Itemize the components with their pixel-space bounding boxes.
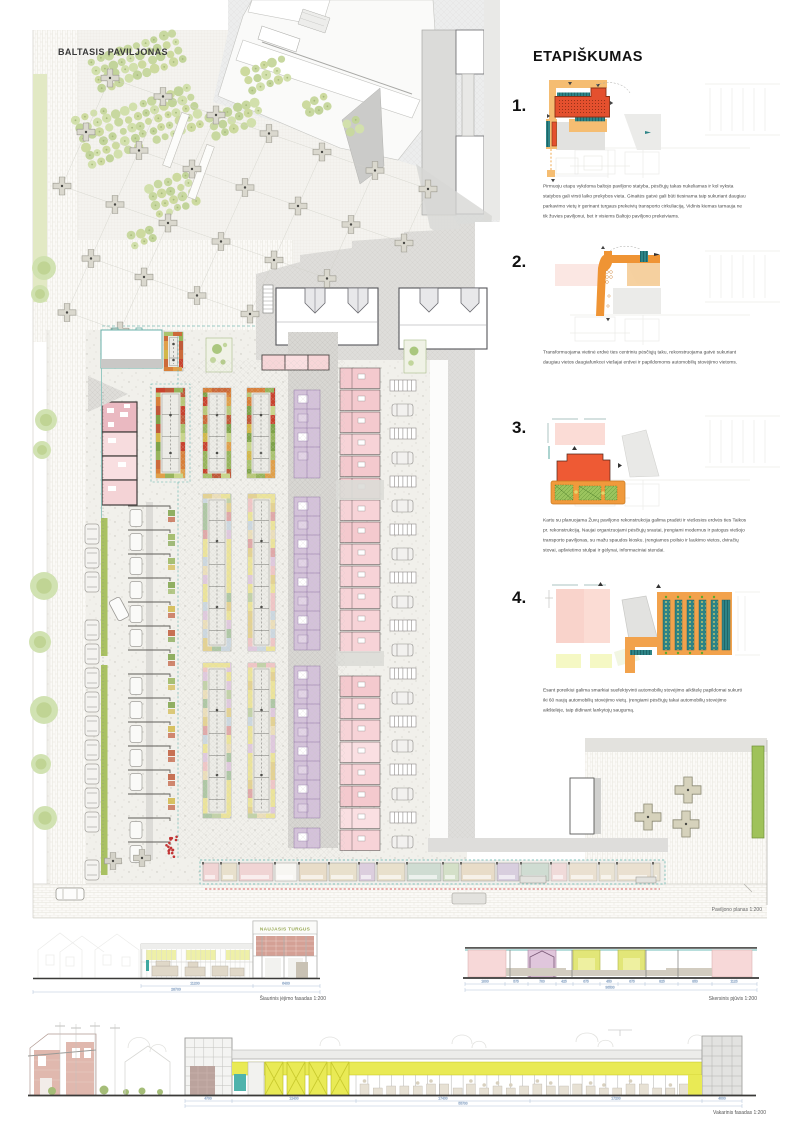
svg-text:6400: 6400 (282, 982, 290, 986)
svg-text:Paviljono planas 1:200: Paviljono planas 1:200 (712, 907, 763, 913)
svg-text:parkavimo vietų ir gerinant tu: parkavimo vietų ir gerinant turgaus prek… (543, 204, 742, 210)
svg-text:Pirmuoju etapu vykdoma baltojo: Pirmuoju etapu vykdoma baltojo paviljono… (543, 184, 734, 190)
svg-text:statybos gali virsti laiko pre: statybos gali virsti laiko prekybos viet… (543, 194, 746, 200)
svg-text:pr. rekonstrukciją. Naujai org: pr. rekonstrukciją. Naujai organizuojami… (543, 528, 745, 534)
svg-text:tik žuvies paviljonui, bet ir: tik žuvies paviljonui, bet ir visiems Ba… (543, 214, 679, 220)
svg-text:stovai, apšvietimo stulpai ir: stovai, apšvietimo stulpai ir gėlynai, i… (543, 548, 665, 554)
svg-text:Skersinis pjūvis 1:200: Skersinis pjūvis 1:200 (709, 996, 758, 1002)
svg-text:36500: 36500 (605, 986, 614, 990)
svg-text:700: 700 (539, 980, 545, 984)
svg-text:675: 675 (583, 980, 589, 984)
svg-text:1000: 1000 (481, 980, 489, 984)
svg-text:Šiaurinis įėjimo fasadas 1:200: Šiaurinis įėjimo fasadas 1:200 (260, 995, 327, 1002)
svg-text:Transformuojama vietinė erdvė: Transformuojama vietinė erdvė ties centr… (543, 350, 737, 356)
svg-text:ETAPIŠKUMAS: ETAPIŠKUMAS (533, 47, 643, 65)
svg-text:4000: 4000 (718, 1097, 726, 1101)
svg-text:28700: 28700 (171, 988, 181, 992)
svg-text:4700: 4700 (204, 1097, 212, 1101)
svg-text:12400: 12400 (289, 1097, 298, 1101)
svg-text:450: 450 (606, 980, 612, 984)
svg-text:675: 675 (629, 980, 635, 984)
svg-text:11200: 11200 (190, 982, 200, 986)
svg-text:aikštelėje, taip didinant lank: aikštelėje, taip didinant lankytojų saug… (543, 708, 634, 714)
svg-text:4.: 4. (512, 588, 526, 607)
svg-text:iki 60 naujų automobilių stovė: iki 60 naujų automobilių stovėjimo vietų… (543, 698, 727, 704)
svg-text:2.: 2. (512, 252, 526, 271)
svg-text:1125: 1125 (730, 980, 737, 984)
svg-text:1.: 1. (512, 96, 526, 115)
svg-text:BALTASIS PAVILJONAS: BALTASIS PAVILJONAS (58, 47, 168, 57)
svg-text:17400: 17400 (438, 1097, 447, 1101)
svg-text:825: 825 (659, 980, 665, 984)
svg-text:55700: 55700 (458, 1102, 467, 1106)
svg-text:850: 850 (692, 980, 698, 984)
svg-text:NAUJASIS TURGUS: NAUJASIS TURGUS (260, 927, 311, 933)
svg-text:17200: 17200 (611, 1097, 620, 1101)
svg-text:transporto paviljonas, su mažu: transporto paviljonas, su mažu spaudos k… (543, 538, 739, 544)
svg-text:Vakarinis fasadas 1:200: Vakarinis fasadas 1:200 (713, 1110, 766, 1116)
svg-text:Esant poreikiui galima smarkia: Esant poreikiui galima smarkiai suefekty… (543, 688, 742, 694)
svg-text:3.: 3. (512, 418, 526, 437)
svg-text:575: 575 (513, 980, 519, 984)
svg-text:daugiau vietos daugiafunkcei v: daugiau vietos daugiafunkcei viešajai er… (543, 360, 737, 366)
svg-text:425: 425 (561, 980, 567, 984)
